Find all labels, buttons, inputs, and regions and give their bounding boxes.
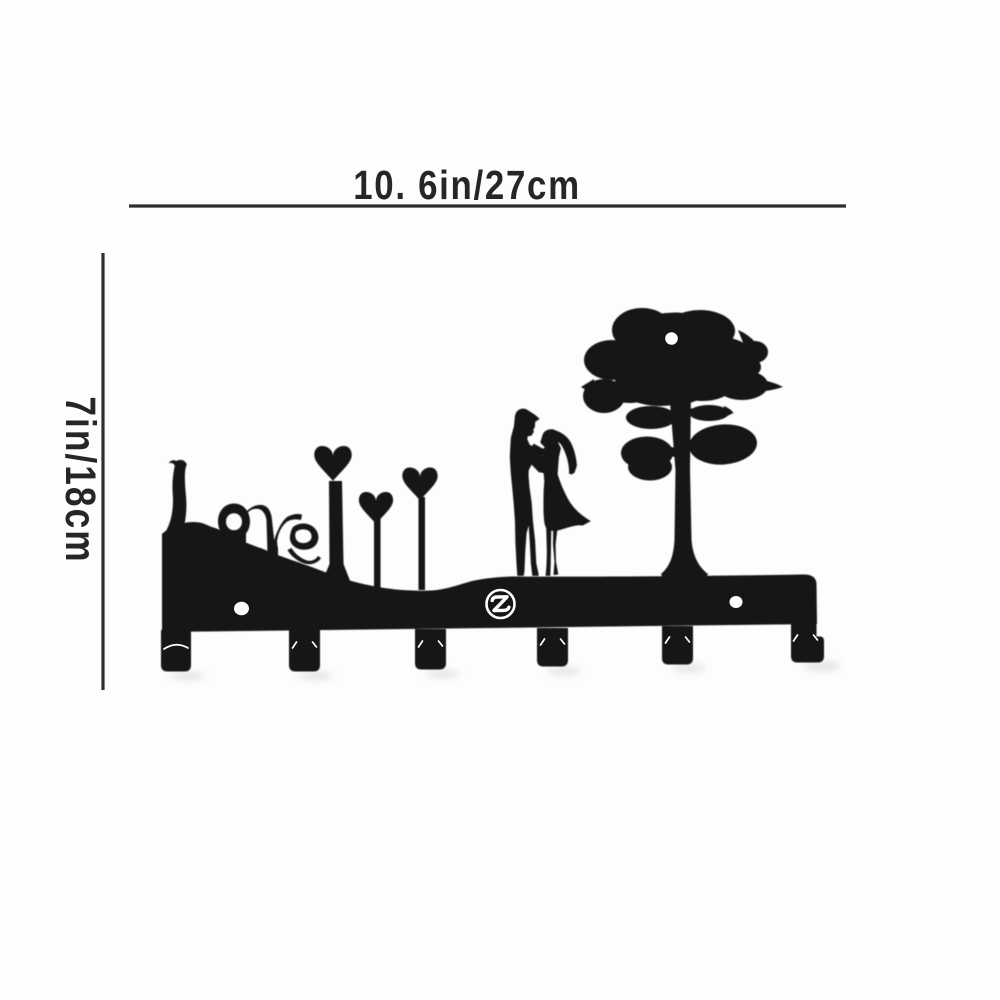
svg-text:7in/18cm: 7in/18cm [56, 396, 104, 563]
svg-text:10. 6in/27cm: 10. 6in/27cm [353, 163, 581, 208]
